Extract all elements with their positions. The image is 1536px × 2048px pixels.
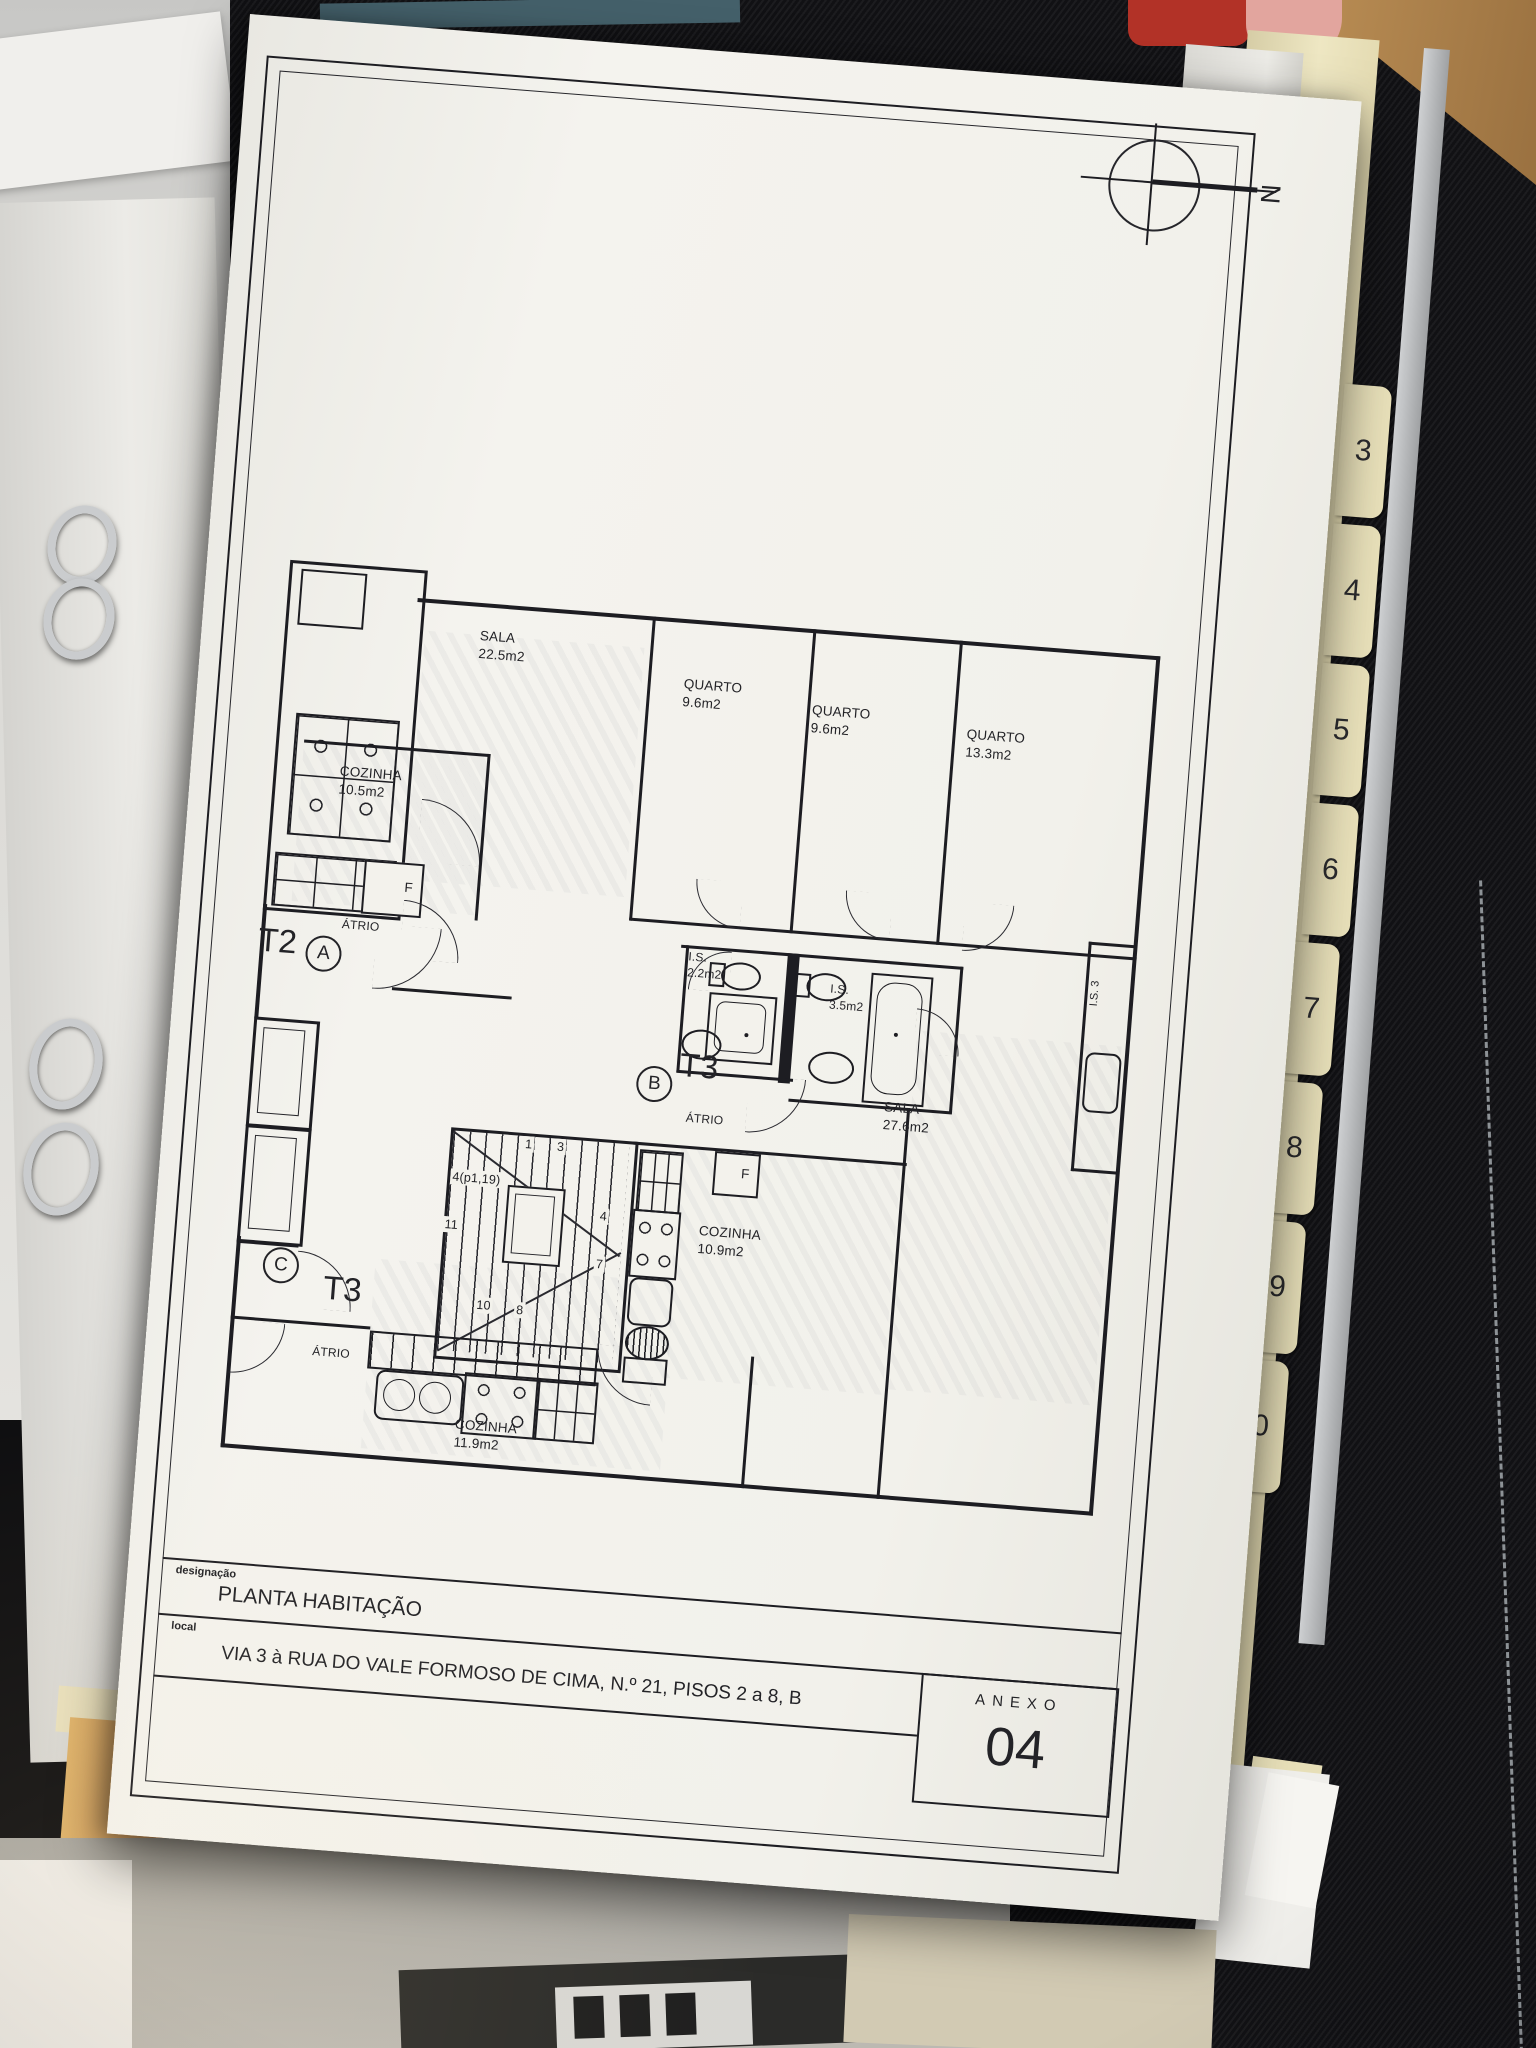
sink [807, 1050, 855, 1086]
room-label-quarto3: QUARTO13.3m2 [965, 725, 1026, 765]
wall [936, 641, 963, 945]
door-arc [228, 1320, 285, 1377]
stair-number: 8 [514, 1302, 526, 1319]
stair-number: 3 [554, 1138, 566, 1155]
elevator-car [248, 1135, 297, 1232]
unit-letter-a: A [304, 934, 343, 973]
local-label: local [171, 1620, 197, 1634]
sink-unit [626, 1277, 674, 1328]
binder-tab: 4 [1323, 523, 1381, 658]
fridge-box: F [712, 1151, 761, 1198]
door-arc [745, 1075, 806, 1136]
counter-grid [532, 1378, 599, 1445]
fridge-label: F [404, 879, 414, 897]
room-label-sala-t2: SALA22.5m2 [478, 627, 527, 666]
stair-number: 10 [474, 1297, 494, 1315]
photo-scene: 3 4 5 6 7 8 9 0 2 Lundi Montag Lunes [0, 0, 1536, 2048]
room-label-cozinha-t3c: COZINHA11.9m2 [453, 1415, 518, 1455]
room-label-cozinha-t2: COZINHA10.5m2 [338, 762, 403, 802]
wall [392, 987, 512, 999]
unit-letter-b: B [635, 1065, 674, 1104]
stove [628, 1209, 681, 1281]
elevator-car [257, 1027, 306, 1116]
white-book-spine: Lundi Montag Lunes [0, 1860, 132, 2048]
compass-north-letter: N [1252, 183, 1289, 205]
card-glyph [619, 1994, 650, 2037]
room-label-cozinha-t3b: COZINHA10.9m2 [697, 1222, 762, 1262]
room-label-is2: I.S.3.5m2 [828, 982, 865, 1016]
room-label-is3-side: I.S. 3 [1088, 980, 1102, 1007]
red-object [1128, 0, 1250, 46]
hall-label-b: ÁTRIO [685, 1111, 724, 1130]
toilet-tank [794, 973, 812, 998]
door-arc [693, 879, 744, 930]
unit-type-b: T3 [678, 1044, 720, 1090]
binder-tab: 5 [1312, 663, 1370, 798]
anexo-number: 04 [916, 1710, 1114, 1787]
card-glyph [573, 1996, 604, 2039]
binder-tab: 6 [1301, 802, 1359, 937]
wall [790, 629, 817, 933]
white-card [555, 1981, 753, 2048]
anexo-box: ANEXO 04 [912, 1673, 1120, 1818]
room-label-quarto2: QUARTO9.6m2 [810, 701, 871, 741]
room-label-sala-t3b: SALA27.6m2 [882, 1098, 931, 1137]
shading [663, 1148, 900, 1395]
unit-type-a: T2 [257, 919, 299, 965]
stair-core-inner [511, 1193, 556, 1256]
stair-number: 4 [597, 1208, 609, 1225]
stair-number: 1 [523, 1136, 535, 1153]
floor-plan-sheet: N [107, 14, 1362, 1921]
beige-box [843, 1914, 1216, 2048]
stair-number: 7 [593, 1256, 605, 1273]
loose-paper [0, 11, 238, 190]
room-label-is1: I.S.2.2m2 [687, 949, 724, 983]
closet [297, 569, 367, 630]
room-label-quarto1: QUARTO9.6m2 [682, 675, 743, 715]
floor-plan: 1 3 4(p1,19) 11 4 7 10 8 F [219, 560, 1174, 1542]
stair-number: 11 [442, 1216, 461, 1234]
unit-type-c: T3 [322, 1267, 364, 1313]
binder-tab: 3 [1334, 384, 1392, 519]
hall-label-a: ÁTRIO [341, 917, 380, 936]
north-compass-icon: N [1089, 119, 1299, 264]
unit-letter-c: C [262, 1246, 301, 1285]
hall-label-c: ÁTRIO [312, 1344, 351, 1363]
card-glyph [665, 1993, 696, 2036]
cabinet-grid [635, 1149, 684, 1214]
fridge-label: F [740, 1165, 750, 1183]
fixture [1081, 1052, 1122, 1115]
door-arc [842, 890, 893, 941]
wall [1089, 942, 1137, 949]
